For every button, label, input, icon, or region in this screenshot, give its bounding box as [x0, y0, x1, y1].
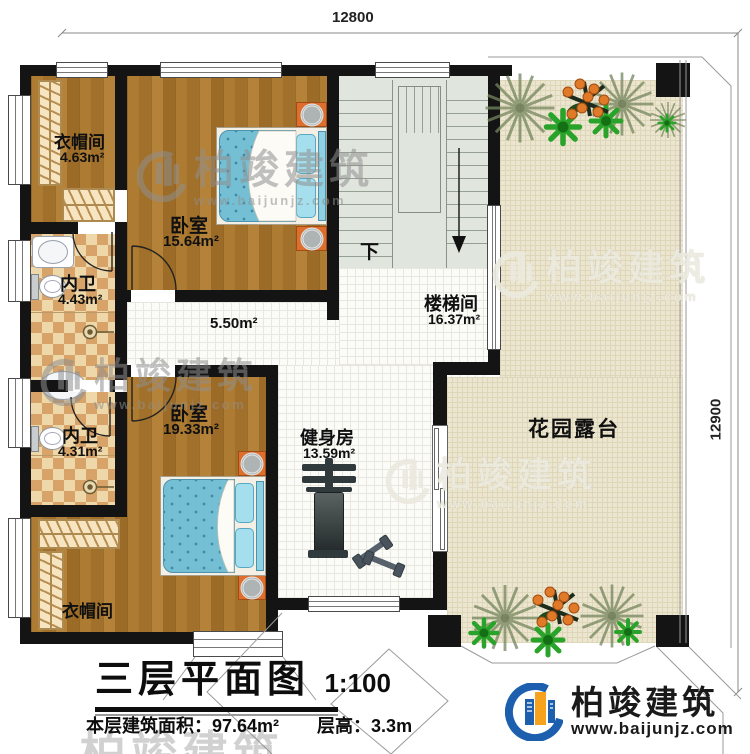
company-logo: 柏竣建筑 www.baijunjz.com: [505, 683, 734, 741]
plan-overlay: [0, 0, 750, 754]
floor-height-info: 层高：3.3m: [317, 712, 412, 738]
dimension-right: 12900: [708, 385, 725, 455]
bedroom-bottom-area: 19.33m²: [163, 421, 219, 438]
bath-bottom-area: 4.31m²: [58, 443, 102, 459]
plants-top: [486, 73, 687, 144]
floor-plan-page: 衣帽间 4.63m² 卧室 15.64m² 内卫 4.43m² 内卫 4.31m…: [0, 0, 750, 754]
company-logo-icon: [505, 683, 563, 741]
gym-area: 13.59m²: [303, 445, 355, 461]
stairwell-area: 16.37m²: [428, 311, 480, 327]
closet-bottom-label: 衣帽间: [62, 597, 113, 622]
closet-top-area: 4.63m²: [60, 149, 104, 165]
floor-area-info: 本层建筑面积：97.64m²: [86, 712, 279, 738]
stair-down-arrow: [452, 148, 466, 253]
title-block: 三层平面图 1:100: [95, 648, 395, 716]
dimension-lines: [58, 29, 742, 696]
company-name: 柏竣建筑: [571, 686, 734, 719]
dimension-top: 12800: [332, 9, 374, 26]
plan-scale: 1:100: [324, 668, 391, 698]
plan-title: 三层平面图: [95, 659, 310, 701]
terrace-label: 花园露台: [528, 413, 620, 443]
bed-sheets: [218, 131, 297, 572]
bedroom-top-area: 15.64m²: [163, 233, 219, 250]
bath-top-area: 4.43m²: [58, 291, 102, 307]
plants-bottom: [471, 585, 644, 656]
hallway-area: 5.50m²: [210, 315, 258, 332]
company-website: www.baijunjz.com: [571, 719, 734, 739]
stair-down-label: 下: [360, 237, 379, 264]
title-info-row: 本层建筑面积：97.64m² 层高：3.3m: [86, 712, 412, 738]
